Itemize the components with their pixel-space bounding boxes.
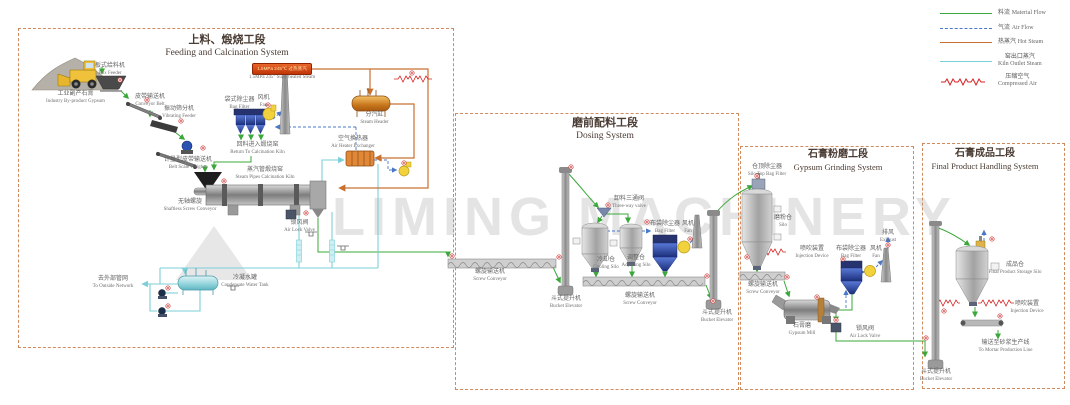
legend-line-air-flow-icon (940, 28, 992, 29)
label-belt-scale: 计量型皮带输送机 Belt Scale Weigher (150, 157, 226, 171)
label-fan-3: 风机 Fan (862, 246, 890, 260)
legend-label-compressed-air: 压缩空气Compressed Air (998, 74, 1037, 89)
section1-title: 上料、煅烧工段 Feeding and Calcination System (127, 34, 327, 60)
bag-filter-1-shape (234, 109, 266, 134)
legend-label-air-flow: 气流 Air Flow (998, 25, 1034, 33)
legend-row-hot-steam: 热蒸汽 Hot Steam (940, 39, 1068, 47)
discharge-conveyor-shape (961, 320, 1004, 326)
gypsum-mill-shape (772, 295, 840, 324)
screw-conveyor-1-shape (448, 259, 556, 268)
legend-line-material-flow-icon (940, 13, 992, 14)
label-return-kiln: 回料进入煅烧窑 Return To Calcination Kiln (215, 142, 300, 156)
legend-row-compressed-air: 压缩空气Compressed Air (940, 74, 1068, 89)
superheated-steam-banner-text: 1.5MPa 245℃ 过热蒸汽 (257, 66, 307, 72)
bag-filter-2-shape (653, 235, 677, 271)
fan-3-shape (865, 266, 876, 277)
label-silo-top-bag-filter: 仓顶除尘器 Silo Top Bag Filter (738, 164, 796, 178)
section2-title: 磨前配料工段 Dosing System (515, 117, 695, 143)
label-air-heater: 空气换热器 Air Heater Exchanger (320, 136, 386, 150)
label-gypsum-mill: 石膏磨 Gypsum Mill (779, 323, 825, 337)
process-flow-diagram: LIMING MACHINERY (0, 0, 1070, 405)
label-injection-device-2: 喷吹装置 Injection Device (1004, 301, 1050, 315)
hot-steam-lines (310, 69, 428, 188)
vibrating-feeder-shape (150, 120, 178, 133)
label-box-feeder: 板式给料机 Box Feeder (80, 63, 140, 77)
air-heater-exchanger-shape (346, 151, 374, 166)
section2-title-cn: 磨前配料工段 (515, 117, 695, 131)
superheated-steam-banner: 1.5MPa 245℃ 过热蒸汽 (252, 63, 312, 75)
label-screw-conveyor-2: 螺旋输送机 Screw Conveyor (605, 293, 675, 307)
air-lock-valve-1-shape (286, 210, 296, 219)
label-screw-conveyor-3: 螺旋输送机 Screw Conveyor (732, 282, 794, 296)
label-fan-1: 风机 Fan (246, 95, 281, 109)
bag-filter-3-shape (841, 261, 862, 294)
label-air-lock-2: 锁风阀 Air Lock Valve (840, 326, 890, 340)
legend-label-hot-steam: 热蒸汽 Hot Steam (998, 39, 1043, 47)
label-screw-conveyor-1: 螺旋输送机 Screw Conveyor (455, 269, 525, 283)
legend-row-air-flow: 气流 Air Flow (940, 25, 1068, 33)
label-three-way-valve: 卸料三通阀 Three-way valve (598, 196, 660, 210)
label-product-silo: 成品仓 Final Product Storage Silo (975, 262, 1055, 276)
label-outside-network: 去外部管网 To Outside Network (84, 276, 142, 290)
label-vibrating-feeder: 振动筛分机 Vibrating Feeder (148, 106, 210, 120)
label-shaftless-screw: 无轴螺旋 Shaftless Screw Conveyor (150, 199, 230, 213)
label-bucket-elevator-2: 斗式提升机 Bucket Elevator (686, 310, 748, 324)
bucket-elevator-1-shape (558, 167, 573, 295)
condensate-tank-shape (178, 268, 218, 295)
label-condensate-tank: 冷凝水罐 Condensate Water Tank (216, 275, 274, 289)
label-adjusting-silo: 调整仓 Adjusting Silo (617, 255, 655, 269)
label-grinding-silo: 磨粉仓 Silo (768, 215, 798, 229)
label-rotary-kiln: 蒸汽管煅烧窑 Steam Pipes Calcination Kiln (222, 167, 308, 181)
legend-row-kiln-outlet-steam: 窑出口蒸汽Kiln Outlet Steam (940, 54, 1068, 69)
label-air-lock-1: 锁风阀 Air Lock Valve (272, 220, 327, 234)
section3-title-cn: 石膏粉磨工段 (752, 149, 924, 162)
label-bucket-elevator-1: 斗式提升机 Bucket Elevator (535, 296, 597, 310)
section1-title-cn: 上料、煅烧工段 (127, 34, 327, 48)
condensate-pumps-shape (158, 290, 167, 318)
label-bucket-elevator-3: 斗式提升机 Bucket Elevator (905, 369, 967, 383)
legend-line-kiln-outlet-steam-icon (940, 61, 992, 62)
crusher-shape (181, 141, 193, 154)
label-fan-2: 风机 Fan (676, 221, 700, 235)
superheated-steam-banner-subtitle: 1.5MPa 245° Superheated Steam (240, 75, 324, 82)
legend-label-material-flow: 料流 Material Flow (998, 10, 1046, 18)
section4-title-en: Final Product Handling System (906, 161, 1064, 172)
legend-row-material-flow: 料流 Material Flow (940, 10, 1068, 18)
screw-conveyor-3-shape (740, 272, 785, 280)
section4-title-cn: 石膏成品工段 (906, 148, 1064, 161)
bucket-elevator-2-shape (706, 210, 721, 309)
label-industry-gypsum: 工业副产石膏 Industry By-product Gypsum (28, 91, 123, 105)
legend-line-hot-steam-icon (940, 42, 992, 43)
label-injection-device-1: 喷吹装置 Injection Device (790, 246, 834, 260)
label-exhaust: 排风 Exhaust (868, 230, 908, 244)
legend-label-kiln-outlet-steam: 窑出口蒸汽Kiln Outlet Steam (998, 54, 1042, 69)
legend-line-compressed-air-icon (940, 77, 992, 86)
screw-conveyor-2-shape (583, 277, 705, 286)
fan-2-shape (678, 241, 690, 253)
section2-title-en: Dosing System (515, 131, 695, 143)
section4-title: 石膏成品工段 Final Product Handling System (906, 148, 1064, 171)
bucket-elevator-3-shape (928, 221, 943, 369)
section1-title-en: Feeding and Calcination System (127, 48, 327, 60)
label-steam-header: 分汽缸 Steam Header (352, 112, 397, 126)
legend: 料流 Material Flow 气流 Air Flow 热蒸汽 Hot Ste… (940, 10, 1068, 94)
label-to-mortar-line: 输送至砂浆生产线 To Mortar Production Line (968, 340, 1043, 354)
